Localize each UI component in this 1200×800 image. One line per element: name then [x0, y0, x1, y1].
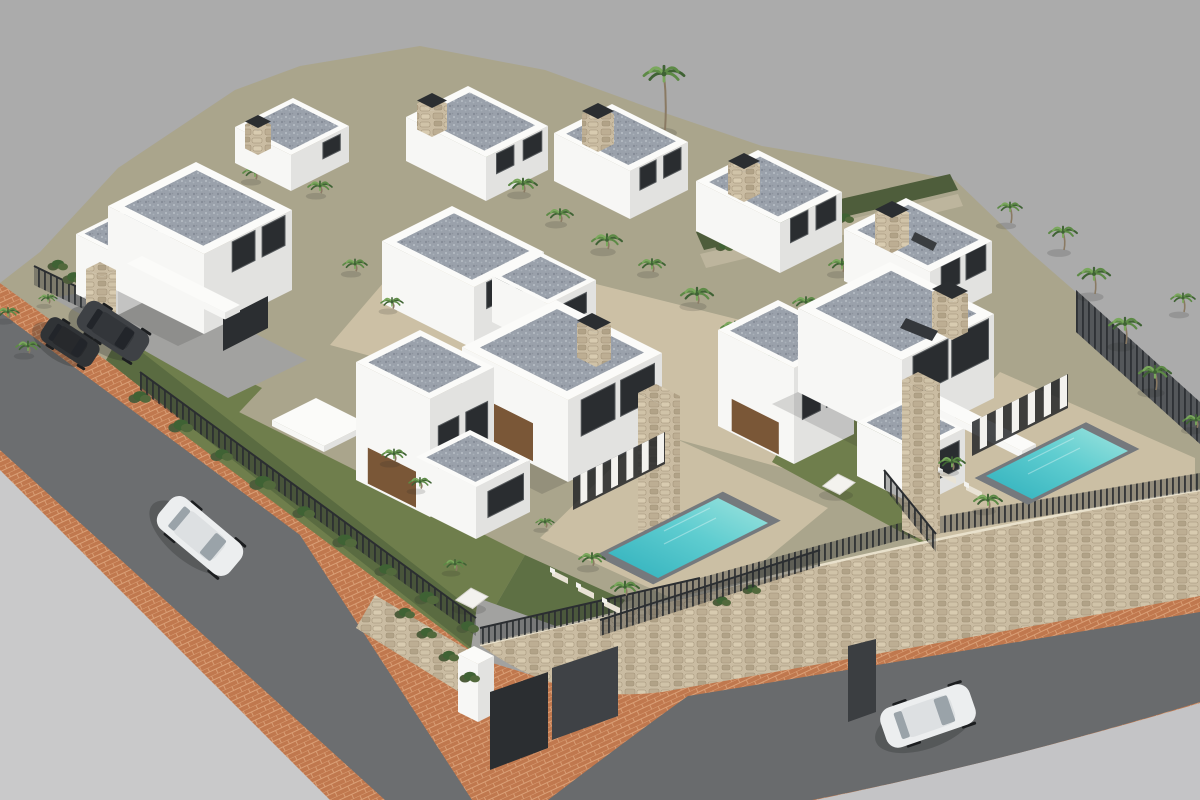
bush-blob — [386, 568, 397, 576]
palm-shadow — [306, 193, 326, 200]
palm-crown — [1194, 418, 1197, 421]
palm-shadow — [972, 507, 996, 515]
pergola-f2-louver — [1044, 383, 1051, 418]
palm-crown — [605, 238, 609, 242]
pergola-f1-louver — [596, 463, 603, 496]
palm-crown — [1061, 230, 1064, 233]
palm-crown — [650, 262, 653, 265]
pergola-f2-louver — [1028, 391, 1035, 426]
bush-blob — [222, 453, 233, 461]
palm-shadow — [1107, 343, 1134, 352]
palm-crown — [695, 292, 699, 296]
palm-shadow — [1076, 293, 1103, 302]
bush-blob — [752, 587, 761, 593]
palm-shadow — [442, 571, 461, 577]
pergola-f1-louver — [580, 471, 587, 504]
palm-crown — [354, 263, 357, 266]
palm-crown — [27, 345, 30, 348]
palm-shadow — [14, 353, 34, 360]
bush-blob — [468, 625, 479, 633]
palm-shadow — [1047, 249, 1071, 257]
pergola-f1-louver — [642, 440, 649, 473]
palm-crown — [950, 460, 953, 463]
bush-blob — [722, 599, 731, 605]
palm-shadow — [996, 223, 1016, 230]
palm-crown — [840, 262, 843, 265]
palm-crown — [393, 453, 396, 456]
bush-blob — [181, 424, 193, 433]
palm-crown — [986, 498, 989, 501]
palm-crown — [590, 556, 593, 559]
bush-blob — [470, 675, 480, 682]
palm-shadow — [609, 594, 633, 602]
palm-shadow — [507, 191, 531, 199]
palm-crown — [1092, 272, 1096, 276]
bush-blob — [140, 395, 151, 403]
palm-shadow — [679, 302, 706, 311]
palm-crown — [454, 563, 457, 566]
palm-shadow — [577, 565, 599, 572]
palm-crown — [558, 212, 561, 215]
palm-shadow — [1169, 312, 1189, 319]
palm-shadow — [379, 309, 398, 315]
palm-shadow — [36, 304, 51, 309]
pergola-f1-louver — [626, 448, 633, 481]
pergola-f1-louver — [657, 433, 664, 466]
pergola-f2-louver — [1012, 399, 1019, 434]
bush-blob — [427, 596, 439, 605]
palm-shadow — [241, 179, 261, 186]
gate-pillar-face-sw — [458, 654, 478, 722]
bush-blob — [58, 263, 68, 270]
palm-shadow — [637, 271, 659, 278]
palm-crown — [1009, 206, 1012, 209]
palm-crown — [521, 182, 524, 185]
render-viewport — [0, 0, 1200, 800]
bush-blob — [405, 611, 415, 618]
palm-shadow — [590, 248, 616, 256]
bush-blob — [304, 510, 315, 518]
palm-shadow — [380, 461, 400, 468]
palm-shadow — [937, 469, 959, 476]
pergola-f1-louver — [611, 456, 618, 489]
palm-crown — [662, 72, 667, 77]
palm-crown — [391, 301, 394, 304]
wall-service-door — [848, 639, 876, 722]
palm-crown — [1182, 297, 1185, 300]
palm-crown — [7, 311, 10, 314]
bush-blob — [427, 631, 437, 638]
bush-blob — [845, 216, 854, 222]
pergola-f2-louver — [980, 415, 987, 450]
pillar-f2-face-se — [924, 383, 940, 541]
bush-blob — [345, 539, 357, 548]
palm-shadow — [407, 489, 426, 495]
palm-shadow — [545, 221, 567, 228]
pergola-f2-louver — [996, 407, 1003, 442]
pergola-f2-louver — [1060, 375, 1067, 410]
palm-crown — [1153, 370, 1157, 374]
palm-shadow — [1137, 389, 1164, 398]
palm-crown — [623, 585, 626, 588]
bush-blob — [449, 654, 459, 661]
palm-shadow — [533, 528, 548, 533]
gate-pillar — [458, 646, 494, 722]
palm-crown — [1123, 322, 1127, 326]
palm-crown — [47, 297, 50, 300]
palm-crown — [319, 185, 322, 188]
palm-shadow — [341, 271, 361, 278]
villa-f2-main-chimney-face-se — [952, 294, 968, 340]
scene-svg — [0, 0, 1200, 800]
palm-crown — [544, 521, 547, 524]
palm-crown — [804, 300, 807, 303]
palm-crown — [419, 481, 422, 484]
bush-blob — [263, 480, 276, 489]
